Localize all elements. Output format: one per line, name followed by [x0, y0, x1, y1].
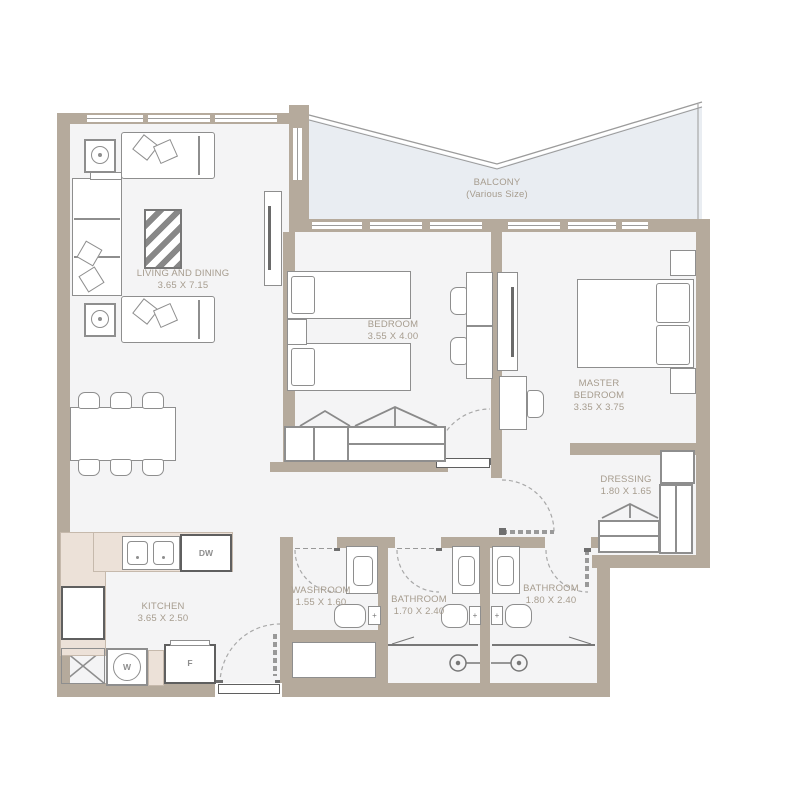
sectional-back	[90, 172, 122, 180]
room-name: BEDROOM	[368, 319, 419, 330]
desk	[499, 376, 527, 430]
toilet-cistern: +	[368, 606, 381, 625]
nightstand	[670, 250, 696, 276]
desk-chair	[450, 287, 467, 315]
room-dims: (Various Size)	[466, 189, 528, 201]
room-label-living-and-dining: LIVING AND DINING 3.65 X 7.15	[137, 268, 230, 292]
pillow	[291, 348, 315, 386]
tv-unit	[497, 272, 518, 371]
window	[430, 222, 482, 229]
window	[87, 115, 143, 122]
table-lamp-dot	[98, 153, 102, 157]
room-label-washroom: WASHROOM 1.55 X 1.60	[291, 585, 350, 609]
window	[508, 222, 560, 229]
room-name: KITCHEN	[141, 601, 184, 612]
room-label-master-bedroom: MASTER BEDROOM 3.35 X 3.75	[562, 378, 636, 414]
room-name: BALCONY	[474, 177, 521, 188]
vanity-basin	[497, 556, 514, 586]
sink-basin	[153, 541, 174, 565]
room-label-bedroom: BEDROOM 3.55 X 4.00	[368, 319, 419, 343]
table-lamp-dot	[98, 317, 102, 321]
dining-chair	[142, 392, 164, 409]
room-label-dressing: DRESSING 1.80 X 1.65	[600, 474, 651, 498]
shaft-cabinet	[61, 648, 105, 684]
tv-screen	[268, 206, 271, 270]
room-label-bathroom-1: BATHROOM 1.70 X 2.40	[391, 594, 447, 618]
dining-chair	[78, 459, 100, 476]
room-label-kitchen: KITCHEN 3.65 X 2.50	[138, 601, 189, 625]
toilet	[505, 604, 532, 628]
balcony-base	[300, 100, 710, 232]
door-gap	[395, 537, 441, 548]
nightstand	[670, 368, 696, 394]
room-dims: 1.70 X 2.40	[391, 606, 447, 618]
fridge-label: F	[164, 658, 216, 668]
toilet-cistern: +	[469, 606, 481, 625]
wardrobe-divider	[675, 486, 677, 552]
service-shaft	[292, 642, 376, 678]
wall	[378, 548, 388, 640]
wall	[597, 555, 610, 697]
sink-drain	[162, 556, 165, 559]
sofa-armrest	[198, 300, 200, 339]
sofa-armrest	[198, 136, 200, 175]
tv-screen	[511, 287, 514, 357]
room-name: WASHROOM	[291, 585, 350, 596]
window	[568, 222, 616, 229]
pillow	[656, 325, 690, 365]
window	[370, 222, 422, 229]
vanity-basin	[353, 556, 373, 586]
wardrobe-divider	[313, 428, 315, 460]
window	[293, 128, 302, 180]
room-dims: 3.35 X 3.75	[562, 402, 636, 414]
room-dims: 1.80 X 2.40	[523, 595, 579, 607]
dishwasher-label: DW	[180, 548, 232, 558]
pillow	[656, 283, 690, 323]
kitchen-counter	[148, 650, 164, 686]
washer-label: W	[113, 662, 141, 672]
bench-shelf	[600, 535, 658, 537]
window	[312, 222, 362, 229]
toilet-cistern: +	[491, 606, 503, 625]
wall	[270, 462, 448, 472]
rug	[144, 209, 182, 269]
desk-divider	[467, 325, 492, 327]
window	[622, 222, 648, 229]
room-name: BATHROOM	[523, 583, 579, 594]
room-name: DRESSING	[600, 474, 651, 485]
wall	[696, 219, 710, 568]
door-gap	[545, 537, 591, 548]
pillow	[291, 276, 315, 314]
room-name: MASTER BEDROOM	[574, 378, 625, 401]
sink-drain	[136, 556, 139, 559]
dressing-wardrobe	[660, 450, 695, 484]
desk-chair	[450, 337, 467, 365]
room-name: BATHROOM	[391, 594, 447, 605]
wall	[480, 548, 490, 683]
nightstand	[287, 319, 307, 345]
sofa-cushion-line	[74, 218, 120, 220]
stove	[61, 586, 105, 640]
room-label-bathroom-2: BATHROOM 1.80 X 2.40	[523, 583, 579, 607]
vanity-basin	[458, 556, 475, 586]
window	[148, 115, 210, 122]
room-dims: 3.65 X 7.15	[137, 280, 230, 292]
fridge-handle	[170, 640, 210, 646]
room-dims: 3.65 X 2.50	[138, 613, 189, 625]
entrance-door	[218, 684, 280, 694]
window	[215, 115, 277, 122]
room-dims: 1.80 X 1.65	[600, 486, 651, 498]
desk-chair	[527, 390, 544, 418]
dining-chair	[110, 392, 132, 409]
room-dims: 1.55 X 1.60	[291, 597, 350, 609]
sink-basin	[127, 541, 148, 565]
floor-plan: DW W F + + + LIVING AND DININ	[0, 0, 800, 800]
room-name: LIVING AND DINING	[137, 268, 230, 279]
dining-table	[70, 407, 176, 461]
dining-chair	[110, 459, 132, 476]
room-label-balcony: BALCONY (Various Size)	[466, 177, 528, 201]
tv-unit	[264, 191, 282, 286]
dining-chair	[142, 459, 164, 476]
room-dims: 3.55 X 4.00	[368, 331, 419, 343]
door-gap	[293, 537, 337, 548]
wardrobe-shelf	[349, 443, 444, 445]
dining-chair	[78, 392, 100, 409]
